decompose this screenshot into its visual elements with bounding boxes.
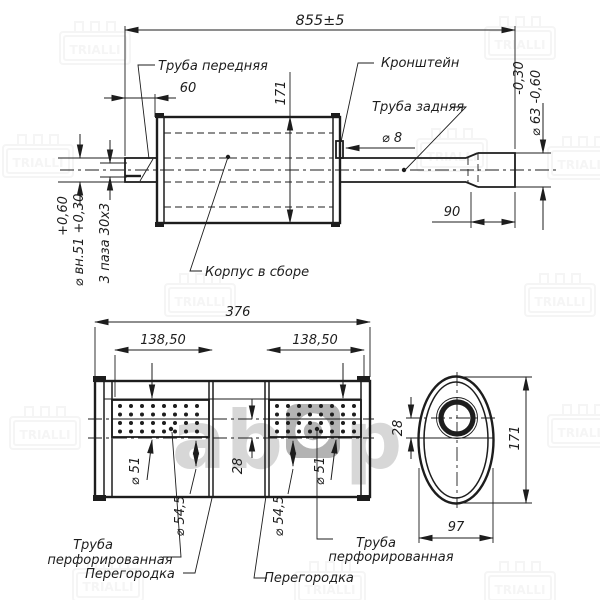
page-background xyxy=(0,0,600,600)
dim-pipe-dia-right: ⌀ 51 xyxy=(313,457,328,486)
note-slots: 3 паза 30х3 xyxy=(98,203,113,283)
dim-bracket-rod-dia: ⌀ 8 xyxy=(382,131,402,146)
label-partition-right: Перегородка xyxy=(264,571,354,586)
dim-pipe-dia-left: ⌀ 51 xyxy=(128,457,143,486)
muffler-technical-drawing: TRIALLI ab p xyxy=(0,0,600,600)
label-perf-pipe-right-line2: перфорированная xyxy=(328,550,453,565)
label-bracket: Кронштейн xyxy=(381,56,460,71)
dim-body-height: 171 xyxy=(274,81,289,106)
label-partition-left: Перегородка xyxy=(85,567,175,582)
label-perf-pipe-left-line1: Труба xyxy=(73,538,113,553)
dim-tip-dia-tolerance: -0,30 xyxy=(512,61,527,95)
center-watermark-letters-left: ab xyxy=(172,394,283,487)
dim-total-length: 855±5 xyxy=(295,13,344,29)
label-rear-pipe: Труба задняя xyxy=(372,100,464,115)
dim-tip-dia: ⌀ 63 -0,60 xyxy=(529,70,544,136)
dim-inlet-dia: ⌀ вн.51 +0,30 xyxy=(72,194,87,287)
dim-end-axis-offset: 28 xyxy=(391,420,406,437)
dim-tip-length: 90 xyxy=(444,205,461,220)
label-front-pipe: Труба передняя xyxy=(158,59,268,74)
dim-inlet-dia-tolerance: +0,60 xyxy=(56,196,71,236)
label-body-assembly: Корпус в сборе xyxy=(205,265,309,280)
label-perf-pipe-left-line2: перфорированная xyxy=(47,553,172,568)
dim-end-width: 97 xyxy=(448,520,465,535)
dim-left-chamber: 138,50 xyxy=(140,333,186,348)
dim-pipe-outer-dia-right: ⌀ 54,5 xyxy=(272,496,287,537)
dim-end-height: 171 xyxy=(508,426,523,451)
dim-section-total: 376 xyxy=(226,305,251,320)
dim-front-pipe-length: 60 xyxy=(180,81,197,96)
label-perf-pipe-right-line1: Труба xyxy=(356,536,396,551)
dim-pipe-outer-dia-left: ⌀ 54,5 xyxy=(173,496,188,537)
dim-right-chamber: 138,50 xyxy=(292,333,338,348)
dim-axis-offset: 28 xyxy=(231,458,246,475)
